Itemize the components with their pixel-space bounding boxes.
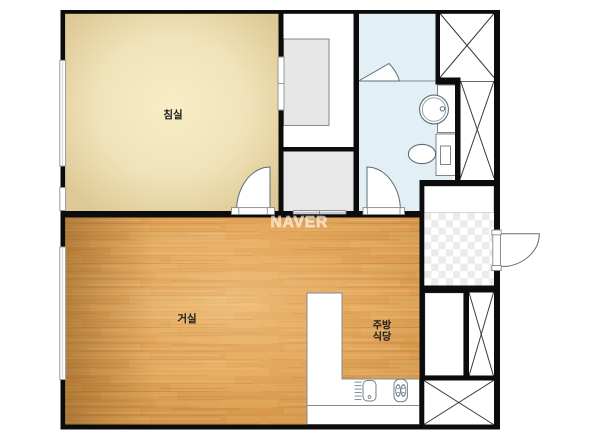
- svg-text:식당: 식당: [373, 330, 392, 343]
- svg-text:주방: 주방: [373, 319, 392, 332]
- svg-text:침실: 침실: [163, 108, 182, 121]
- svg-text:NAVER: NAVER: [271, 214, 329, 231]
- svg-text:거실: 거실: [177, 312, 196, 325]
